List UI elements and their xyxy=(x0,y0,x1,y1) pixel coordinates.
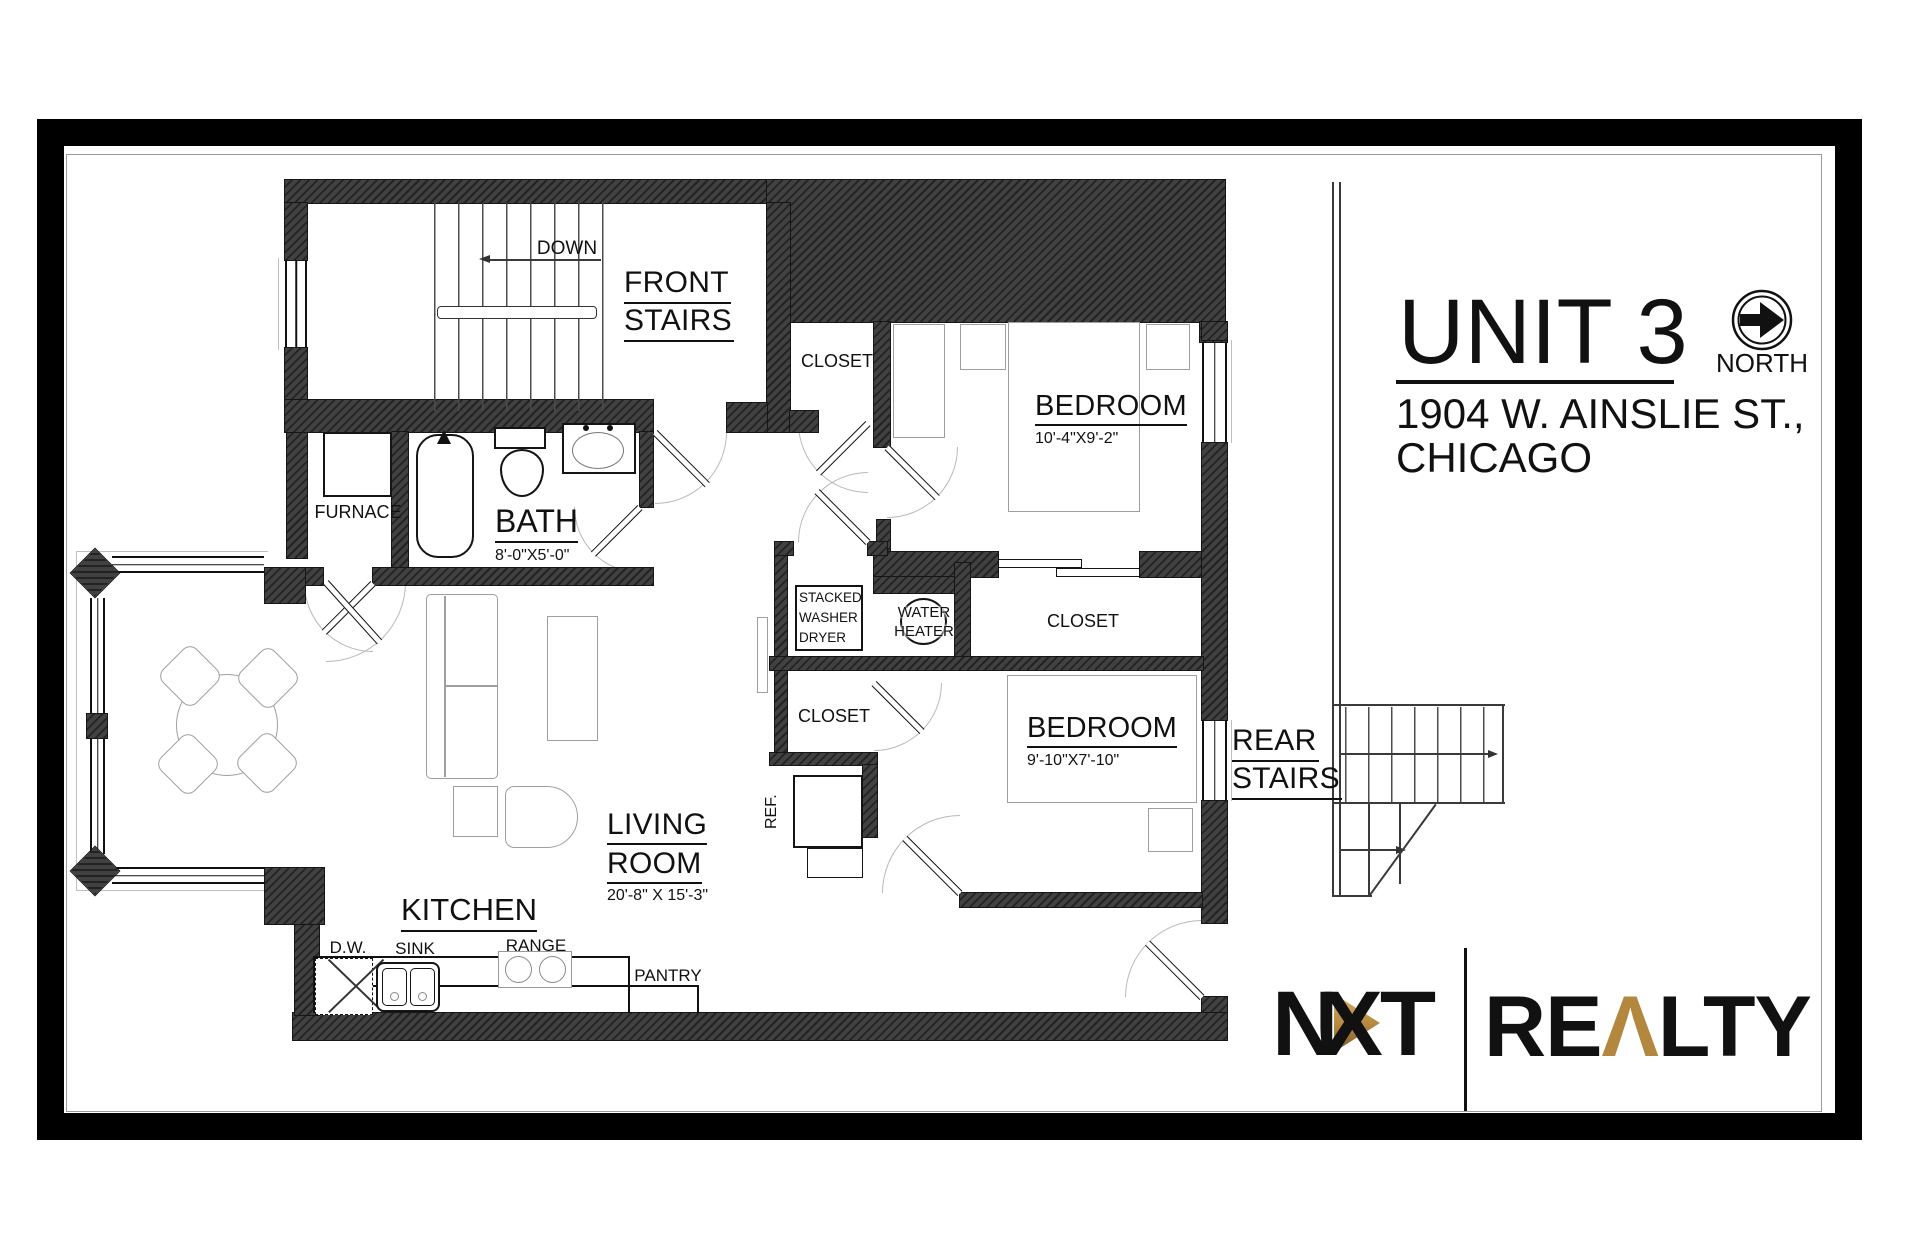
floor-plan-page: { "title_block": { "unit": "UNIT 3", "ad… xyxy=(0,0,1920,1242)
logo-nxt: NXT xyxy=(1272,972,1433,1077)
logo-nxt-xt: XT xyxy=(1321,973,1433,1075)
page-inner-border xyxy=(66,154,1822,1112)
